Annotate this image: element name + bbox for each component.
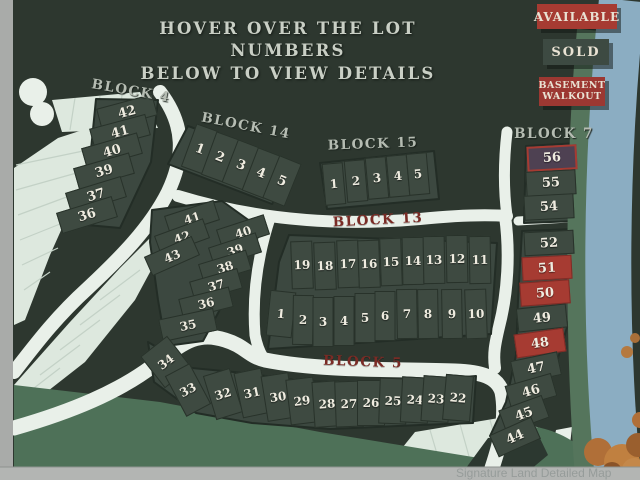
lot-b13-18[interactable]: 10: [464, 289, 488, 340]
lot-b7-4[interactable]: 51: [521, 255, 572, 282]
legend: AVAILABLE SOLD BASEMENT WALKOUT: [0, 0, 640, 120]
lot-b7-5[interactable]: 50: [519, 279, 571, 306]
lot-b7-11[interactable]: 44: [489, 417, 541, 458]
lot-b7-0[interactable]: 56: [526, 144, 577, 172]
lot-b5-1[interactable]: 33: [165, 363, 211, 417]
lot-b13-7[interactable]: 12: [446, 235, 469, 283]
lot-map-page: 4241403937361234512345191817161514131211…: [0, 0, 640, 480]
lot-b13-17[interactable]: 9: [441, 289, 463, 339]
lot-b13-10[interactable]: 2: [292, 295, 314, 345]
lot-b13-8[interactable]: 11: [469, 236, 492, 284]
legend-basement-walkout-badge: BASEMENT WALKOUT: [539, 77, 605, 106]
lot-b7-2[interactable]: 54: [523, 193, 574, 221]
lot-b13-6[interactable]: 13: [423, 236, 446, 284]
lot-b13-16[interactable]: 8: [417, 289, 439, 339]
lot-b13-13[interactable]: 5: [355, 293, 376, 343]
lot-b13-12[interactable]: 4: [334, 296, 355, 346]
lot-b13-3[interactable]: 16: [357, 240, 381, 289]
lot-b13-4[interactable]: 15: [379, 238, 403, 287]
lot-b15-4[interactable]: 5: [406, 152, 431, 196]
lot-b13-2[interactable]: 17: [336, 240, 360, 289]
lot-b13-0[interactable]: 19: [290, 241, 314, 290]
lot-b13-15[interactable]: 7: [396, 289, 418, 339]
watermark-text: Signature Land Detailed Map: [456, 466, 640, 480]
lot-b15-0[interactable]: 1: [322, 162, 347, 206]
lot-b7-3[interactable]: 52: [523, 230, 574, 257]
legend-sold-badge: SOLD: [543, 39, 609, 65]
lot-b5-12[interactable]: 22: [442, 374, 474, 422]
legend-available-badge: AVAILABLE: [537, 4, 617, 29]
lot-b13-1[interactable]: 18: [313, 242, 337, 291]
lot-b13-5[interactable]: 14: [402, 237, 425, 285]
lot-b13-11[interactable]: 3: [313, 297, 334, 347]
lot-b13-14[interactable]: 6: [375, 291, 396, 341]
